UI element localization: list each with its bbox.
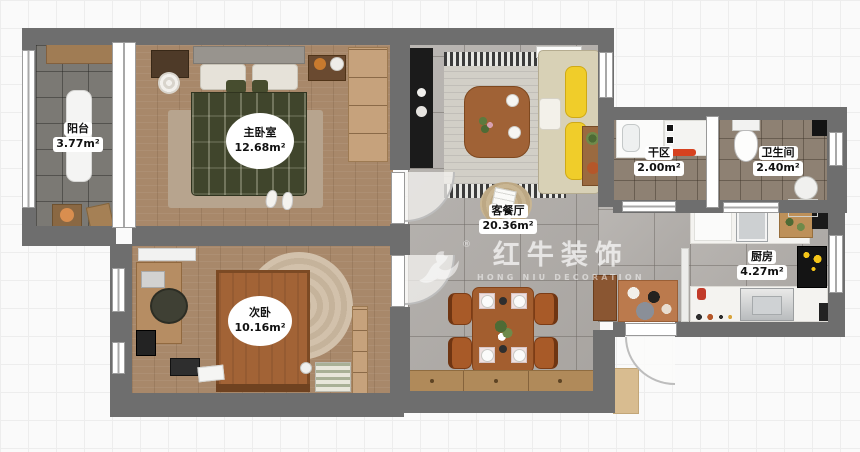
fridge xyxy=(737,209,767,241)
room-area: 20.36m² xyxy=(479,219,536,233)
room-label-master-bedroom: 主卧室 12.68m² xyxy=(226,113,294,169)
dining-centerpiece xyxy=(492,316,514,342)
wall-entry-stub xyxy=(613,322,625,337)
dry-area-transom-1 xyxy=(622,201,676,212)
plant-pot xyxy=(60,208,74,222)
dining-chair-top-left xyxy=(448,293,472,325)
kitchen-jar xyxy=(697,288,706,300)
coffee-table xyxy=(464,86,530,158)
dining-chair-bottom-right xyxy=(534,337,558,369)
hallway-divider xyxy=(681,248,689,322)
sideboard-knob-1 xyxy=(430,379,434,383)
sideboard-knob-2 xyxy=(494,379,498,383)
sofa-throw xyxy=(539,98,561,130)
second-bedroom-door xyxy=(391,255,405,307)
room-label-dry-area: 干区 2.00m² xyxy=(634,146,684,176)
kitchen-window xyxy=(829,235,843,293)
dining-chair-top-right xyxy=(534,293,558,325)
room-area: 12.68m² xyxy=(234,141,285,156)
pc-tower xyxy=(136,330,156,356)
desk-papers xyxy=(197,365,224,383)
laptop xyxy=(141,271,165,288)
coffee-table-plate-1 xyxy=(506,94,519,107)
shower-head xyxy=(794,176,818,200)
wall-top xyxy=(22,28,614,45)
master-bedroom-door xyxy=(391,172,405,224)
printer xyxy=(170,358,200,376)
room-area: 10.16m² xyxy=(234,321,285,336)
dry-area-box-1 xyxy=(666,124,674,132)
balcony-shelf xyxy=(46,42,114,64)
nightstand-left-rug xyxy=(158,72,180,94)
dining-cup-bottom xyxy=(499,345,507,353)
room-name: 干区 xyxy=(645,146,673,160)
coffee-table-plate-2 xyxy=(508,126,521,139)
room-name: 阳台 xyxy=(64,122,92,136)
wall-rightblock-top xyxy=(598,107,847,120)
plate-2 xyxy=(513,295,526,308)
wall-left-lower xyxy=(110,244,132,397)
dry-area-transom-2 xyxy=(723,202,779,213)
second-wardrobe xyxy=(352,306,368,394)
room-label-kitchen: 厨房 4.27m² xyxy=(738,250,786,280)
wall-bottom-left xyxy=(110,393,404,417)
spice-row xyxy=(695,313,735,321)
kitchen-cabinet-box xyxy=(694,211,732,241)
entry-door xyxy=(625,323,677,336)
wall-bedrooms-living-a xyxy=(390,45,410,170)
floor-plan: 阳台 3.77m² 主卧室 12.68m² 次卧 10.16m² 客餐厅 20.… xyxy=(0,0,860,452)
second-bed-footboard xyxy=(216,384,310,392)
room-area: 2.40m² xyxy=(753,161,802,175)
room-label-bathroom: 卫生间 2.40m² xyxy=(750,146,806,176)
plate-1 xyxy=(481,295,494,308)
wall-bedrooms-living-b xyxy=(390,224,410,255)
tv-console-cup xyxy=(417,88,426,97)
room-area: 3.77m² xyxy=(53,137,102,151)
master-bed-headboard xyxy=(193,46,305,64)
bench xyxy=(315,362,351,392)
cooktop xyxy=(797,246,827,288)
room-name: 厨房 xyxy=(748,250,776,264)
wall-kitchen-bottom xyxy=(675,322,845,337)
living-right-window xyxy=(599,52,613,98)
room-label-living-dining: 客餐厅 20.36m² xyxy=(478,204,538,234)
balcony-partition-door xyxy=(112,42,136,228)
room-area: 2.00m² xyxy=(634,161,683,175)
second-bedroom-window-2 xyxy=(112,342,125,374)
second-bedroom-shelf xyxy=(138,248,196,261)
room-name: 卫生间 xyxy=(759,146,798,160)
nightstand-right-dish xyxy=(330,57,344,71)
plate-4 xyxy=(513,349,526,362)
master-wardrobe xyxy=(348,47,388,162)
entry-mat xyxy=(618,280,678,322)
sideboard-knob-3 xyxy=(558,379,562,383)
dining-cup-top xyxy=(499,297,507,305)
wall-living-bottom xyxy=(390,391,615,413)
balcony-window xyxy=(22,50,35,208)
wall-balcony-bottom xyxy=(22,226,116,246)
room-name: 主卧室 xyxy=(244,126,277,141)
room-area: 4.27m² xyxy=(737,265,786,279)
wall-bedrooms-living-c xyxy=(390,307,410,395)
bathroom-window xyxy=(829,132,843,166)
plate-3 xyxy=(481,349,494,362)
coffee-table-flowers xyxy=(476,114,496,134)
sofa-pillow-yellow-top xyxy=(565,66,587,118)
desk-chair xyxy=(150,288,188,324)
wall-between-bedrooms xyxy=(132,226,410,246)
room-label-second-bedroom: 次卧 10.16m² xyxy=(228,296,292,346)
room-name: 客餐厅 xyxy=(489,204,528,218)
shoe-rack xyxy=(593,275,617,321)
dining-chair-bottom-left xyxy=(448,337,472,369)
outdoor-doormat xyxy=(613,368,639,414)
room-label-balcony: 阳台 3.77m² xyxy=(48,122,108,152)
bathroom-sliding-door xyxy=(706,116,719,208)
room-name: 次卧 xyxy=(249,306,271,321)
tv-console-dish xyxy=(416,106,427,117)
bedside-lamp xyxy=(300,362,312,374)
dry-area-box-2 xyxy=(666,136,674,144)
kitchen-sink-basin xyxy=(752,296,782,315)
nightstand-right-tray xyxy=(314,58,326,70)
second-bedroom-window-1 xyxy=(112,268,125,312)
wall-living-right-lower xyxy=(593,330,615,393)
